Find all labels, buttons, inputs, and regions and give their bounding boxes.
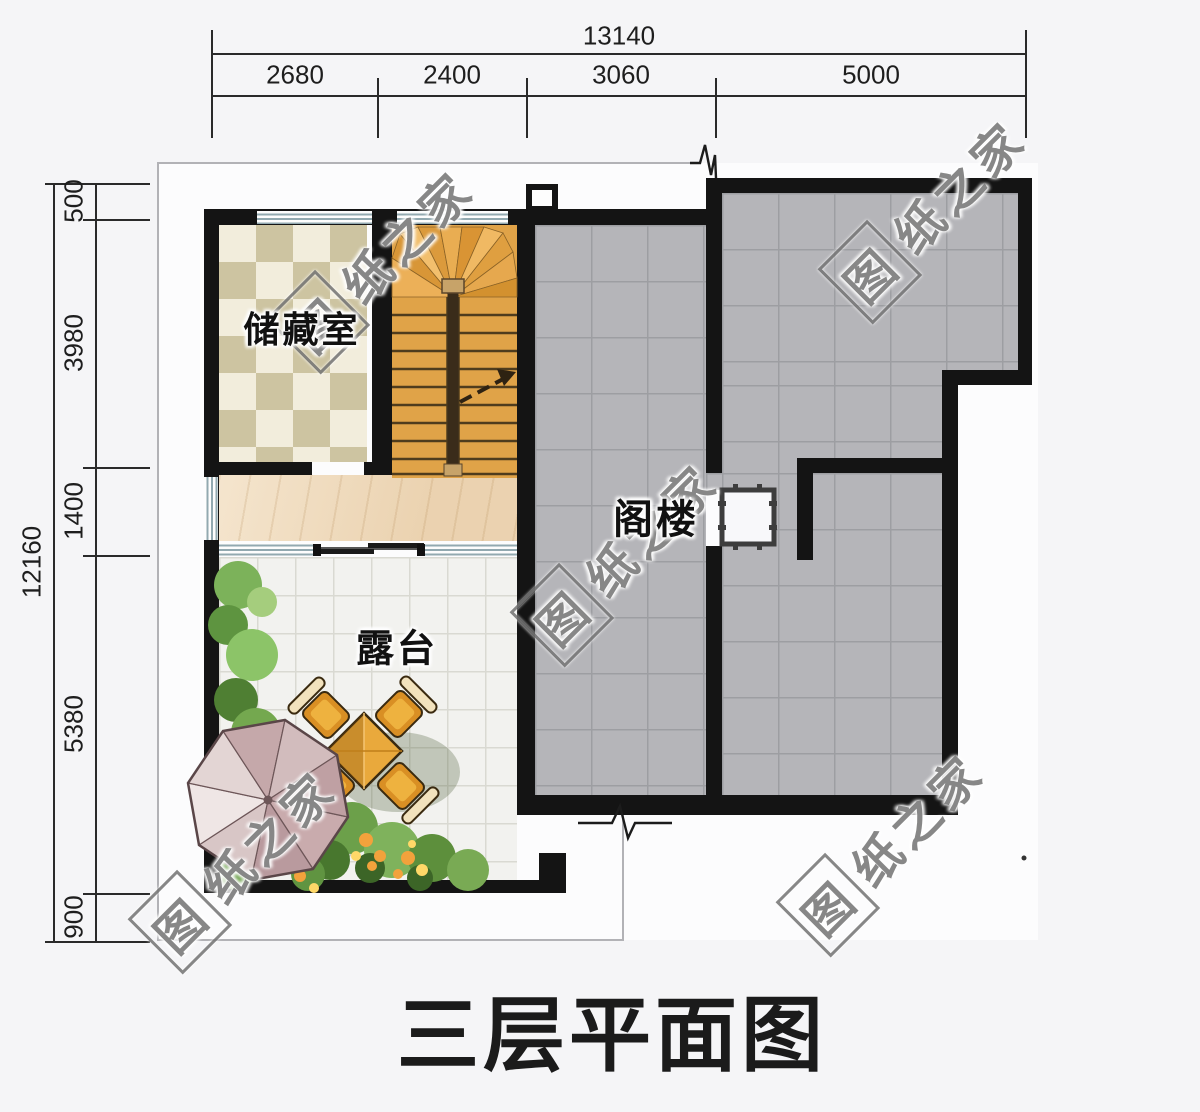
dim-total-top: 13140 <box>583 21 655 52</box>
dim-tick <box>45 941 150 943</box>
wall-attic-left <box>517 209 535 815</box>
plan-outline-bottom <box>157 939 624 941</box>
dim-total-left: 12160 <box>17 526 48 598</box>
attic-floor-right-lower <box>722 473 942 795</box>
dim-line <box>212 53 1026 55</box>
floor-plan-sheet: 13140 2680 2400 3060 5000 12160 500 3980… <box>0 0 1200 1112</box>
plan-outline-right-lower <box>622 815 624 941</box>
sliding-door-panel <box>318 549 374 554</box>
window-storage-top <box>257 211 372 224</box>
dim-seg-left-2: 1400 <box>59 482 90 540</box>
dim-line <box>95 183 97 942</box>
dim-tick <box>715 78 717 138</box>
wall-attic-interior-upper <box>706 193 722 473</box>
dim-seg-left-4: 900 <box>59 895 90 938</box>
dim-line <box>53 183 55 942</box>
sliding-door-post <box>417 544 425 556</box>
hallway-floor <box>219 475 517 541</box>
window-hall-left <box>204 477 218 540</box>
dim-line <box>212 95 1026 97</box>
sliding-door-post <box>313 544 321 556</box>
dim-seg-left-3: 5380 <box>59 695 90 753</box>
room-label-storage: 储藏室 <box>243 301 360 353</box>
dim-tick <box>83 467 150 469</box>
dim-tick <box>83 219 150 221</box>
dim-tick <box>526 78 528 138</box>
dim-tick <box>377 78 379 138</box>
dim-tick <box>83 893 150 895</box>
wall-storage-bottom <box>204 462 312 475</box>
dim-tick <box>83 555 150 557</box>
page-title: 三层平面图 <box>397 969 827 1088</box>
room-label-terrace: 露台 <box>356 618 438 673</box>
flue-square-inner <box>532 190 552 206</box>
dim-tick <box>211 30 213 138</box>
window-terrace-right <box>425 542 517 556</box>
dim-seg-top-1: 2400 <box>423 60 481 91</box>
wall-outer-left <box>204 209 219 893</box>
wall-partition-horizontal <box>797 458 958 473</box>
wall-outer-right-upper <box>1018 178 1032 385</box>
wall-storage-bottom-stub <box>364 462 392 475</box>
wall-terrace-step <box>539 853 566 880</box>
wall-attic-interior-lower <box>706 546 722 795</box>
dim-seg-top-3: 5000 <box>842 60 900 91</box>
room-label-attic: 阁楼 <box>613 487 699 545</box>
dim-tick <box>1025 30 1027 138</box>
dim-seg-left-1: 3980 <box>59 314 90 372</box>
dim-seg-left-0: 500 <box>59 179 90 222</box>
dim-seg-top-2: 3060 <box>592 60 650 91</box>
wall-partition-leg <box>797 458 813 560</box>
plan-outline-left <box>157 162 159 941</box>
dim-seg-top-0: 2680 <box>266 60 324 91</box>
window-terrace-left <box>219 542 313 556</box>
sliding-door-panel <box>368 543 424 548</box>
